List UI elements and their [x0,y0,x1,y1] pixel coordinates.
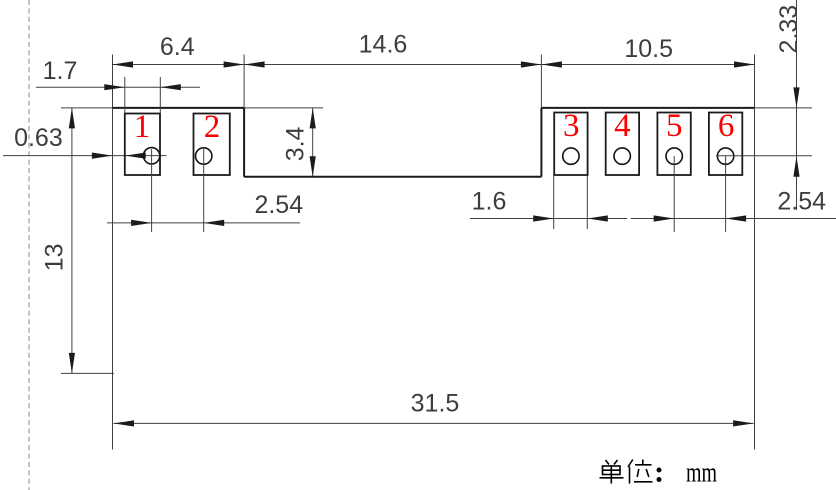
svg-text:6.4: 6.4 [160,33,195,61]
svg-text:2.54: 2.54 [777,188,826,216]
svg-text:1.6: 1.6 [472,188,507,216]
svg-text:4: 4 [614,108,631,144]
svg-text:31.5: 31.5 [411,390,460,418]
svg-text:2.54: 2.54 [254,191,303,219]
svg-text:0.63: 0.63 [14,124,63,152]
svg-text:1: 1 [134,109,151,145]
svg-text:6: 6 [718,108,735,144]
svg-text:2.33: 2.33 [775,5,803,54]
svg-text:3: 3 [563,108,580,144]
svg-text:5: 5 [666,108,683,144]
svg-text:2: 2 [204,109,221,145]
svg-text:10.5: 10.5 [624,35,673,63]
svg-text:1.7: 1.7 [43,57,78,85]
svg-text:14.6: 14.6 [359,30,408,58]
svg-text:13: 13 [40,243,68,271]
svg-text:mm: mm [686,458,717,489]
svg-text:3.4: 3.4 [282,126,310,161]
